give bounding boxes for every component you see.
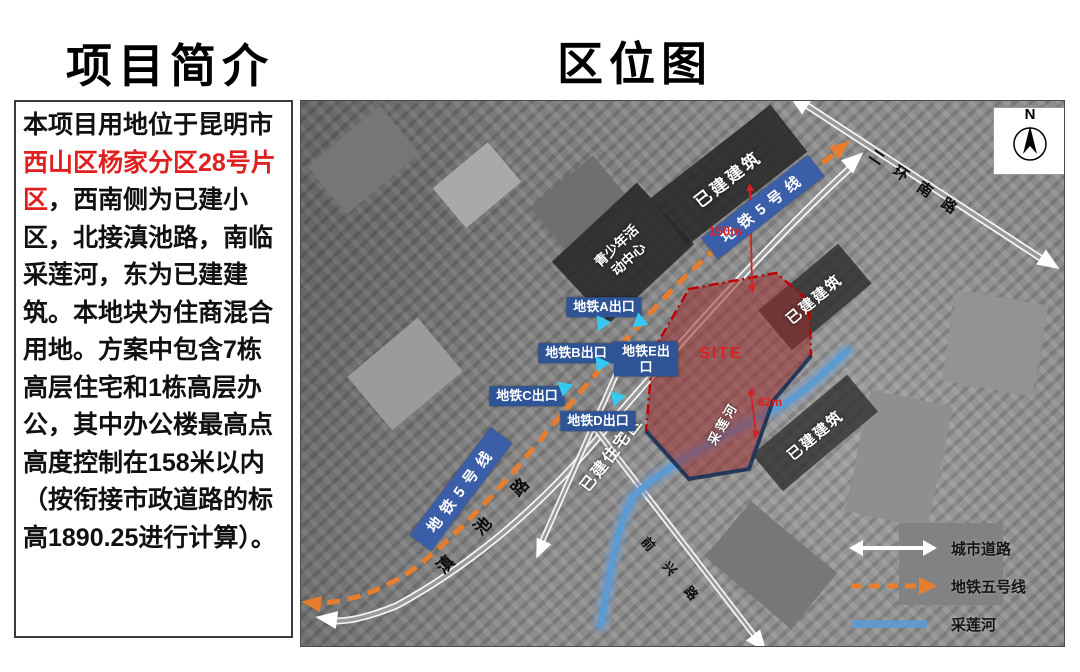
compass-icon <box>1010 122 1050 166</box>
building-block <box>347 318 462 431</box>
north-compass: N <box>993 107 1065 175</box>
legend-label-metro-line5: 地铁五号线 <box>951 576 1026 597</box>
site-label: SITE <box>699 345 743 363</box>
map-legend: 城市道路 地铁五号线 采莲河 <box>849 529 1026 643</box>
intro-post: ，西南侧为已建小区，北接滇池路，南临采莲河，东为已建建筑。本地块为住商混合用地。… <box>23 186 276 552</box>
page-title-project: 项目简介 <box>30 30 310 96</box>
road-label-erhuannanlu: 二环南路 <box>865 144 973 226</box>
building-block <box>307 106 420 215</box>
project-intro-panel: 本项目用地位于昆明市西山区杨家分区28号片区，西南侧为已建小区，北接滇池路，南临… <box>14 100 293 638</box>
legend-row-river: 采莲河 <box>849 605 1026 643</box>
river-label-on-map: 采莲河 <box>702 398 742 448</box>
intro-pre: 本项目用地位于昆明市 <box>23 111 273 139</box>
legend-label-river: 采莲河 <box>951 614 996 635</box>
dimension-150m-label: 150m <box>708 224 741 239</box>
legend-row-metro-line5: 地铁五号线 <box>849 567 1026 605</box>
building-block <box>705 501 837 628</box>
building-block <box>942 290 1049 397</box>
legend-row-city-road: 城市道路 <box>849 529 1026 567</box>
metro-exit-c-label: 地铁C出口 <box>489 386 564 406</box>
dimension-62m-label: 62m <box>758 395 782 409</box>
project-intro-text: 本项目用地位于昆明市西山区杨家分区28号片区，西南侧为已建小区，北接滇池路，南临… <box>23 107 284 557</box>
location-map: N 二环南路 滇 池 路 前 兴 路 地铁5号线 地铁5号线 已建建筑 青少年活… <box>300 100 1065 647</box>
road-label-qianxinglu: 前 兴 路 <box>638 532 709 610</box>
city-road-symbol-icon <box>849 538 937 558</box>
river-symbol-icon <box>849 614 937 634</box>
metro-exit-d-label: 地铁D出口 <box>560 411 635 431</box>
metro-line5-symbol-icon <box>849 576 937 596</box>
metro-exit-e-label: 地铁E出口 <box>614 341 678 376</box>
exit-marker-d-icon <box>606 391 626 409</box>
north-label: N <box>994 108 1065 122</box>
building-block <box>433 142 522 228</box>
exit-marker-c-icon <box>555 382 573 399</box>
legend-label-city-road: 城市道路 <box>951 538 1011 559</box>
page-title-location-map: 区位图 <box>455 28 815 94</box>
slide: 项目简介 区位图 本项目用地位于昆明市西山区杨家分区28号片区，西南侧为已建小区… <box>0 0 1080 672</box>
metro-exit-a-label: 地铁A出口 <box>566 297 641 317</box>
